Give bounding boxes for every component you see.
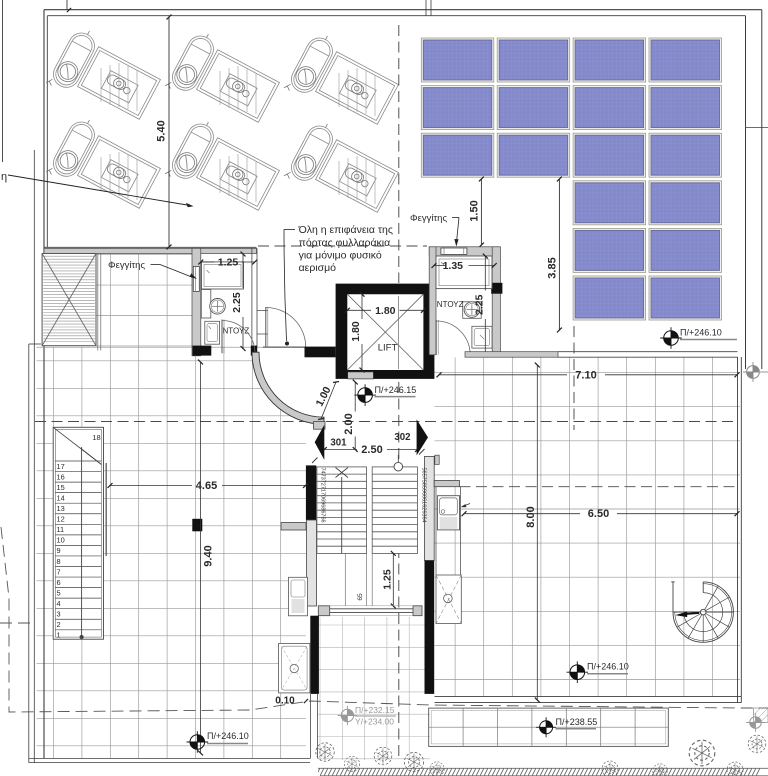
- svg-text:2: 2: [57, 620, 61, 629]
- svg-text:18: 18: [92, 433, 100, 442]
- svg-text:8: 8: [57, 557, 61, 566]
- svg-text:8.00: 8.00: [525, 506, 537, 527]
- svg-text:1.25: 1.25: [381, 569, 393, 590]
- svg-text:1.25: 1.25: [218, 257, 239, 269]
- svg-text:17: 17: [57, 462, 65, 471]
- svg-text:Φεγγίτης: Φεγγίτης: [108, 260, 145, 271]
- svg-text:1: 1: [57, 631, 61, 640]
- svg-text:12: 12: [57, 515, 65, 524]
- svg-text:5: 5: [57, 588, 61, 597]
- svg-text:2.50: 2.50: [361, 444, 382, 456]
- svg-text:65: 65: [357, 593, 364, 601]
- svg-text:11: 11: [57, 525, 65, 534]
- svg-text:16: 16: [57, 472, 65, 481]
- svg-text:2.25: 2.25: [231, 292, 243, 313]
- svg-text:αερισμό: αερισμό: [299, 262, 337, 274]
- svg-text:301: 301: [330, 437, 347, 448]
- svg-text:9: 9: [57, 546, 61, 555]
- svg-text:ΝΤΟΥΖ: ΝΤΟΥΖ: [223, 327, 250, 336]
- svg-text:Π/+246.10: Π/+246.10: [680, 328, 722, 338]
- svg-text:10: 10: [57, 536, 65, 545]
- svg-text:3.85: 3.85: [546, 257, 558, 278]
- svg-text:4: 4: [57, 599, 61, 608]
- svg-text:14: 14: [57, 493, 65, 502]
- svg-text:7: 7: [57, 567, 61, 576]
- svg-text:1.80: 1.80: [375, 305, 396, 317]
- svg-text:13: 13: [57, 504, 65, 513]
- svg-text:747372717069686766: 747372717069686766: [319, 468, 325, 523]
- svg-text:565758596061626364: 565758596061626364: [420, 468, 426, 523]
- svg-text:Π/+238.55: Π/+238.55: [556, 717, 598, 727]
- svg-text:302: 302: [394, 432, 410, 443]
- svg-text:Π/+246.15: Π/+246.15: [375, 385, 417, 395]
- svg-text:Όλη η επιφάνεια της: Όλη η επιφάνεια της: [298, 224, 393, 236]
- svg-text:3: 3: [57, 610, 61, 619]
- svg-text:7.10: 7.10: [575, 369, 596, 381]
- svg-text:15: 15: [57, 483, 65, 492]
- svg-text:1.80: 1.80: [350, 321, 362, 342]
- svg-text:1.50: 1.50: [468, 200, 480, 221]
- svg-text:για μόνιμο φυσικό: για μόνιμο φυσικό: [299, 250, 382, 262]
- svg-text:1.35: 1.35: [443, 260, 464, 272]
- svg-text:ΝΤΟΥΖ: ΝΤΟΥΖ: [437, 300, 464, 309]
- svg-text:LIFT: LIFT: [378, 343, 398, 354]
- svg-text:2.00: 2.00: [343, 413, 355, 434]
- svg-text:Π/+246.10: Π/+246.10: [587, 662, 629, 672]
- svg-text:Π/+246.10: Π/+246.10: [207, 731, 249, 741]
- svg-text:Π/+232.15: Π/+232.15: [355, 705, 395, 715]
- svg-text:6: 6: [57, 578, 61, 587]
- svg-text:0.10: 0.10: [275, 696, 295, 707]
- svg-text:4.65: 4.65: [196, 480, 217, 492]
- svg-text:Φεγγίτης: Φεγγίτης: [410, 213, 447, 224]
- svg-text:6.50: 6.50: [588, 508, 609, 520]
- svg-text:πόρτας φυλλαράκια: πόρτας φυλλαράκια: [299, 237, 391, 249]
- svg-text:Υ/+234.00: Υ/+234.00: [355, 717, 394, 727]
- svg-text:5.40: 5.40: [156, 120, 168, 141]
- svg-text:9.40: 9.40: [203, 545, 215, 566]
- svg-text:2.25: 2.25: [473, 294, 485, 315]
- svg-text:η: η: [1, 171, 7, 183]
